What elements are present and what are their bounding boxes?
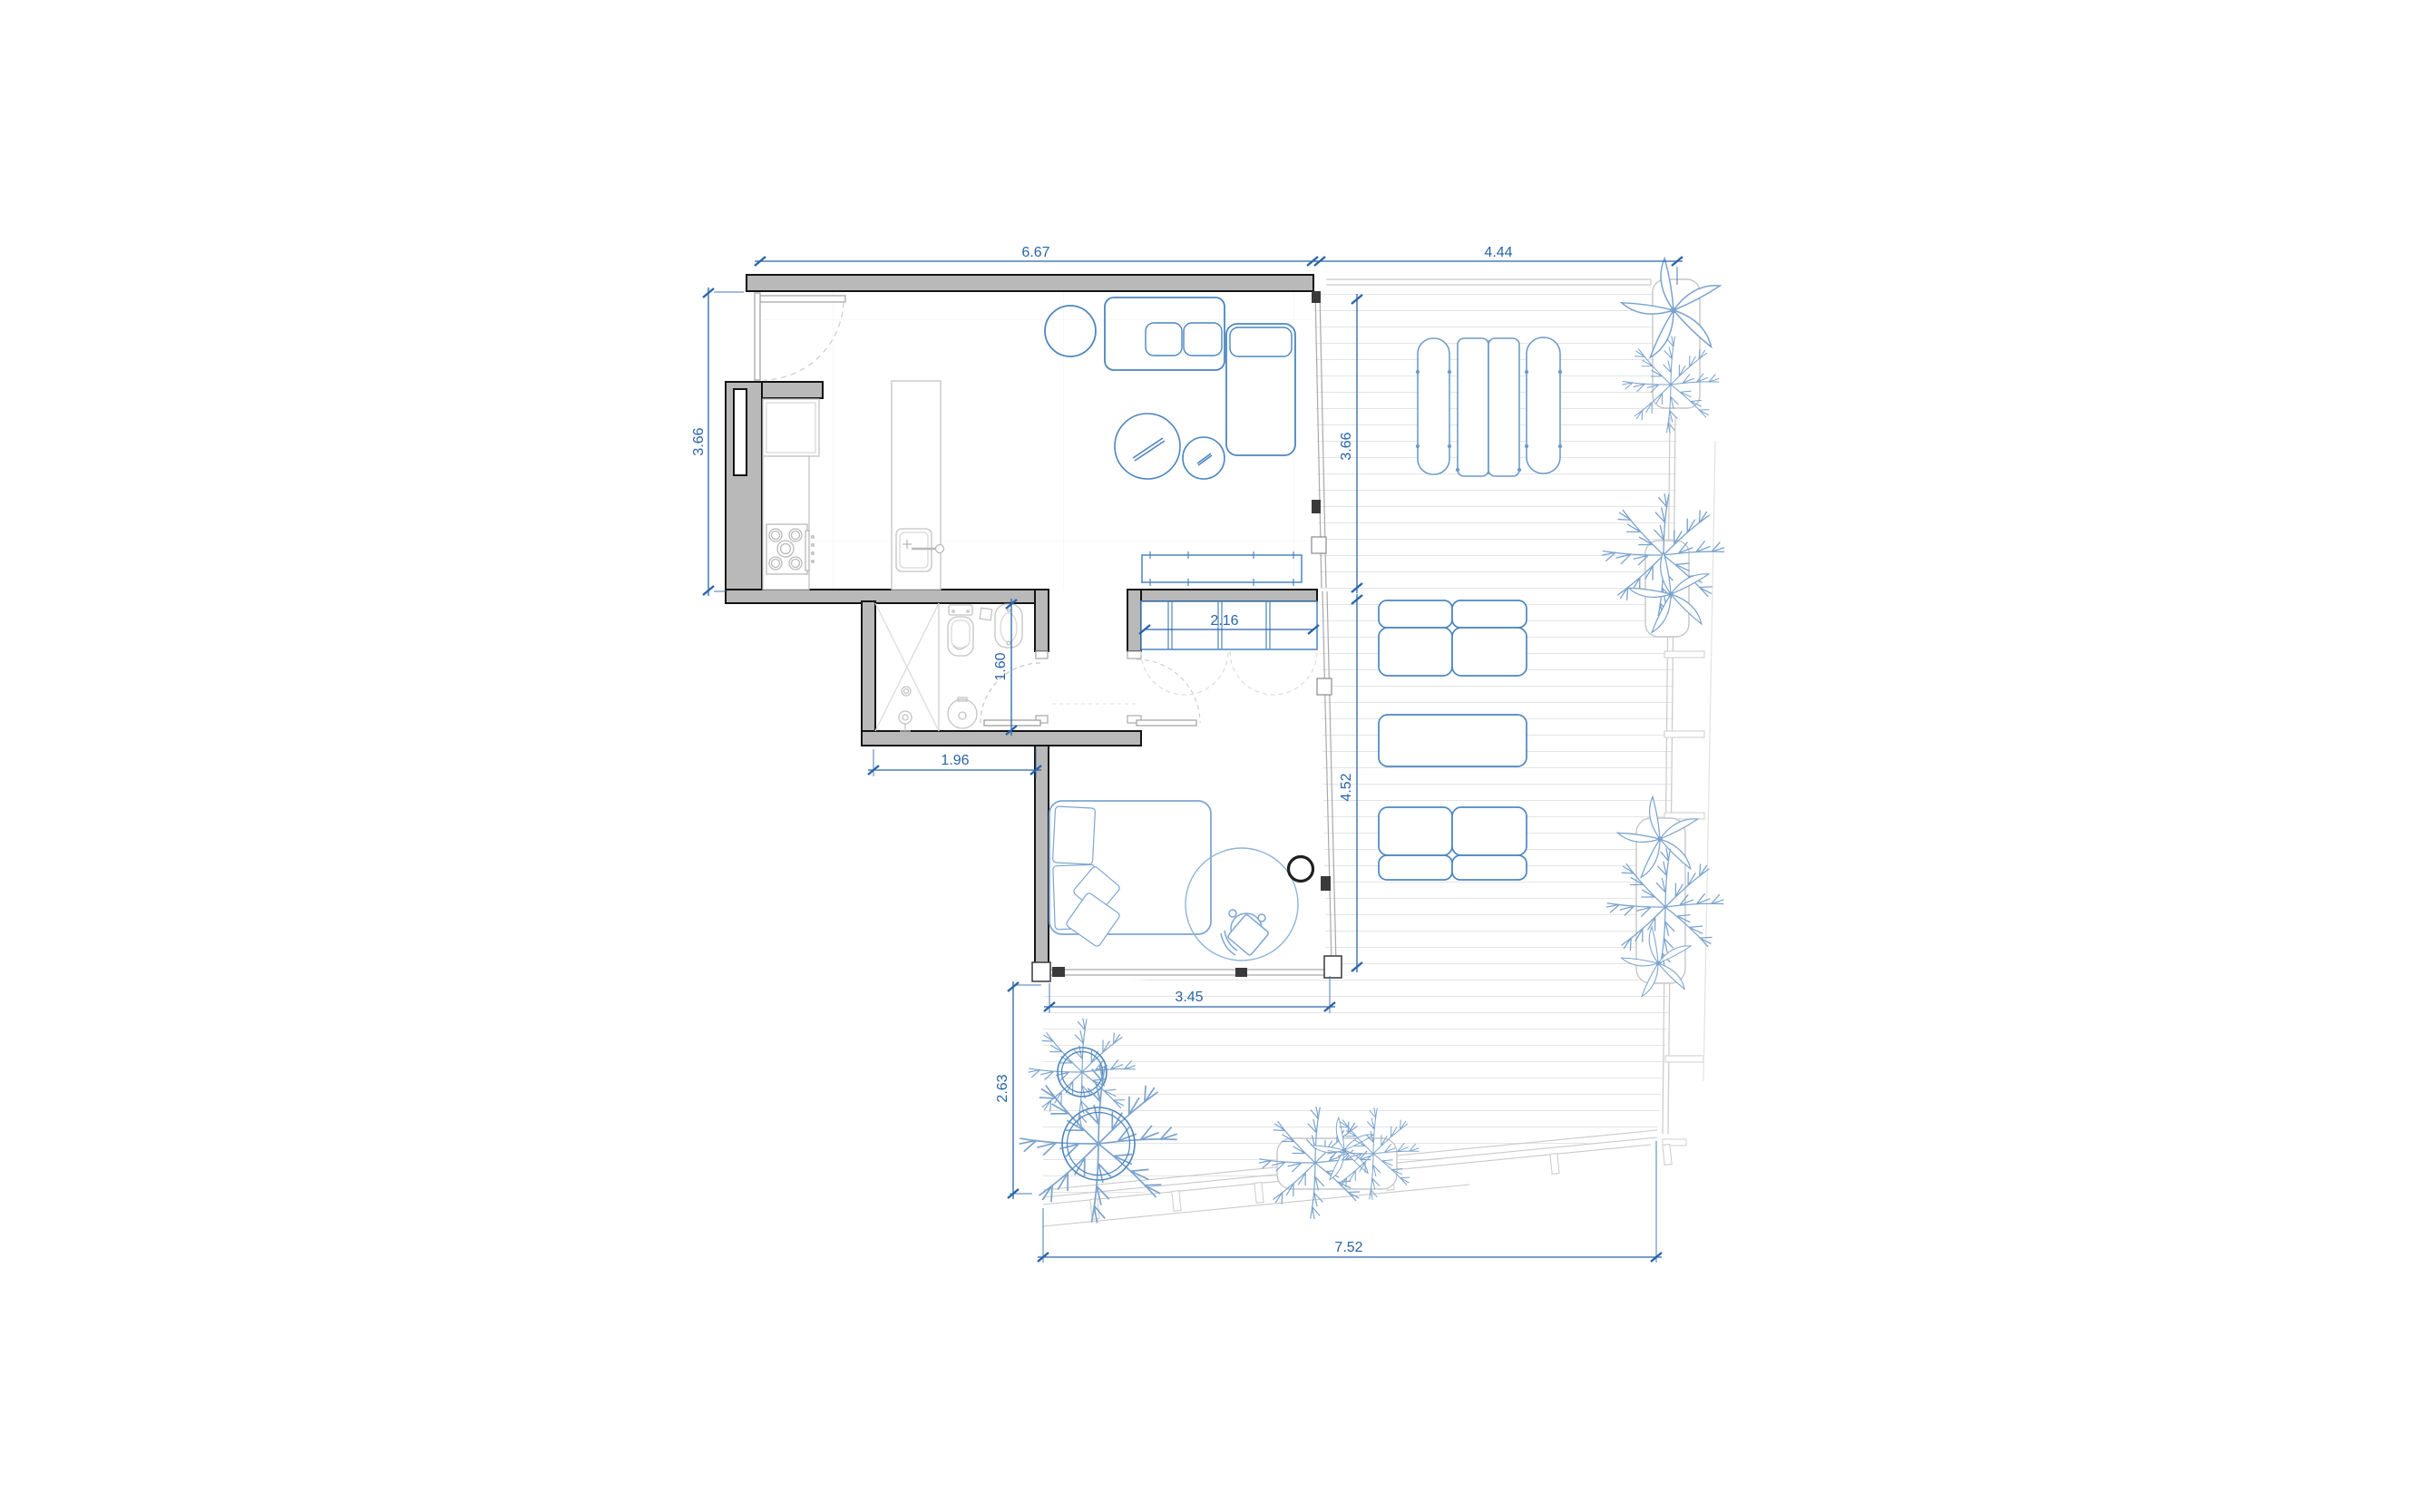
outdoor-table bbox=[1379, 715, 1527, 766]
bathroom-door bbox=[981, 651, 1048, 726]
bedroom-door bbox=[1127, 651, 1200, 726]
wall-top bbox=[746, 275, 1313, 291]
toilet-icon bbox=[948, 605, 973, 656]
stove-icon bbox=[766, 524, 814, 574]
wardrobe-door-arcs bbox=[1141, 651, 1317, 695]
sun-loungers bbox=[1416, 337, 1562, 476]
bathroom bbox=[875, 603, 1048, 731]
outdoor-sofa-south bbox=[1379, 807, 1527, 880]
bidet-icon bbox=[995, 604, 1022, 648]
dim-label-bathroom-inner: 1.60 bbox=[993, 652, 1009, 680]
bathroom-door-leaf bbox=[984, 720, 1040, 726]
floor-plan-page: 6.67 4.44 3.66 3.66 4.52 2.16 1.60 1.96 … bbox=[0, 0, 2420, 1512]
entry-door-leaf bbox=[760, 296, 845, 302]
outdoor-sofa-north bbox=[1379, 600, 1527, 676]
bed bbox=[1049, 801, 1211, 948]
wall-niche bbox=[980, 608, 992, 620]
dim-label-terrace-right-upper: 3.66 bbox=[1339, 432, 1354, 460]
terrace-top-edge bbox=[1326, 279, 1651, 285]
dim-label-garden-left: 2.63 bbox=[995, 1074, 1010, 1102]
wall-south-living bbox=[726, 590, 1048, 603]
shower-head-icon bbox=[899, 711, 912, 731]
dim-label-bedroom-bottom: 3.45 bbox=[1175, 990, 1203, 1005]
kitchen-wall-niche bbox=[734, 389, 746, 475]
bathroom-door-swing-arc bbox=[981, 663, 1040, 723]
entry-door-frame bbox=[755, 293, 760, 380]
wall-wardrobe-return bbox=[1127, 590, 1141, 651]
dim-label-living-top: 6.67 bbox=[1021, 245, 1049, 260]
corner-post bbox=[1032, 962, 1050, 981]
living-room-floor bbox=[762, 291, 1313, 590]
side-table bbox=[1289, 857, 1313, 882]
dim-label-kitchen-left: 3.66 bbox=[691, 427, 707, 455]
floor-plan-svg: 6.67 4.44 3.66 3.66 4.52 2.16 1.60 1.96 … bbox=[0, 0, 2420, 1512]
hallway-wardrobe bbox=[1052, 601, 1317, 726]
dim-label-bathroom-outer: 1.96 bbox=[941, 753, 969, 768]
dim-label-terrace-right-lower: 4.52 bbox=[1339, 773, 1354, 801]
wall-bathroom-right bbox=[1035, 590, 1049, 651]
corner-post bbox=[1324, 956, 1342, 978]
wall-wardrobe-top bbox=[1127, 590, 1317, 601]
washbasin-icon bbox=[948, 697, 977, 728]
wall-bathroom-left bbox=[862, 601, 875, 733]
bedroom bbox=[1049, 801, 1313, 961]
dim-label-wardrobe: 2.16 bbox=[1210, 613, 1238, 629]
shower bbox=[875, 603, 939, 731]
wall-bathroom-bottom bbox=[862, 731, 1141, 746]
dim-label-garden-bottom: 7.52 bbox=[1334, 1240, 1362, 1255]
bedroom-door-leaf bbox=[1137, 720, 1196, 726]
wall-bedroom-left bbox=[1035, 746, 1049, 963]
armchair bbox=[1221, 910, 1269, 956]
dim-label-terrace-top: 4.44 bbox=[1484, 245, 1512, 260]
